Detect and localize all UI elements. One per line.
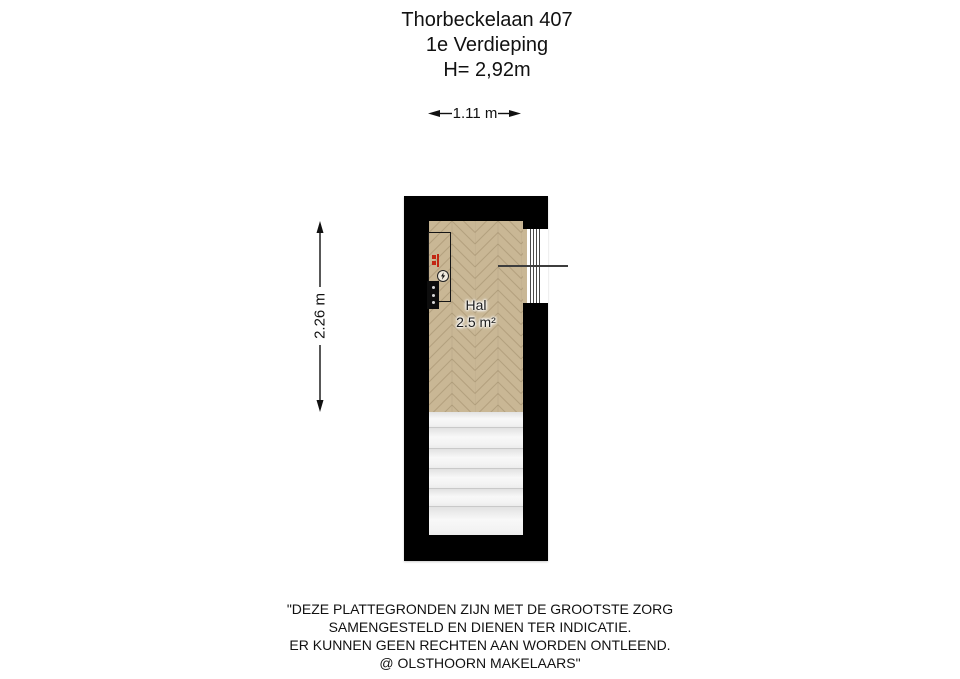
door-leaf-line — [498, 265, 568, 267]
panel-dot — [432, 286, 435, 289]
depth-dimension: 2.26 m — [309, 213, 331, 415]
depth-dimension-label: 2.26 m — [312, 293, 329, 339]
radiator-icon — [432, 261, 436, 265]
ceiling-height: H= 2,92m — [7, 58, 960, 83]
disclaimer-line: ER KUNNEN GEEN RECHTEN AAN WORDEN ONTLEE… — [0, 636, 960, 654]
up-arrow-icon — [317, 221, 324, 287]
disclaimer-line: "DEZE PLATTEGRONDEN ZIJN MET DE GROOTSTE… — [0, 600, 960, 618]
stair-tread — [429, 448, 523, 468]
left-arrow-icon — [428, 110, 452, 117]
radiator-icon — [437, 254, 439, 267]
radiator-icon — [432, 255, 436, 259]
title-block: Thorbeckelaan 407 1e Verdieping H= 2,92m — [7, 8, 960, 83]
width-dimension: 1.11 m — [419, 104, 523, 123]
page-title: Thorbeckelaan 407 — [7, 8, 960, 33]
hall-floor: Hal 2.5 m² — [429, 221, 523, 412]
floor-subtitle: 1e Verdieping — [7, 33, 960, 58]
stair-tread — [429, 427, 523, 447]
disclaimer: "DEZE PLATTEGRONDEN ZIJN MET DE GROOTSTE… — [0, 600, 960, 672]
room-name: Hal — [429, 297, 523, 314]
width-dimension-label: 1.11 m — [453, 105, 498, 122]
meter-closet — [428, 232, 451, 302]
room-area: 2.5 m² — [429, 314, 523, 331]
staircase — [429, 412, 523, 535]
floorplan: Hal 2.5 m² — [404, 196, 548, 561]
stair-tread — [429, 506, 523, 535]
room-label: Hal 2.5 m² — [429, 297, 523, 331]
stair-tread — [429, 468, 523, 488]
stair-tread — [429, 412, 523, 427]
down-arrow-icon — [317, 345, 324, 412]
stair-tread — [429, 488, 523, 506]
disclaimer-line: SAMENGESTELD EN DIENEN TER INDICATIE. — [0, 618, 960, 636]
floorplan-page: { "header": { "address": "Thorbeckelaan … — [0, 0, 960, 679]
right-arrow-icon — [498, 110, 521, 117]
disclaimer-line: @ OLSTHOORN MAKELAARS" — [0, 654, 960, 672]
